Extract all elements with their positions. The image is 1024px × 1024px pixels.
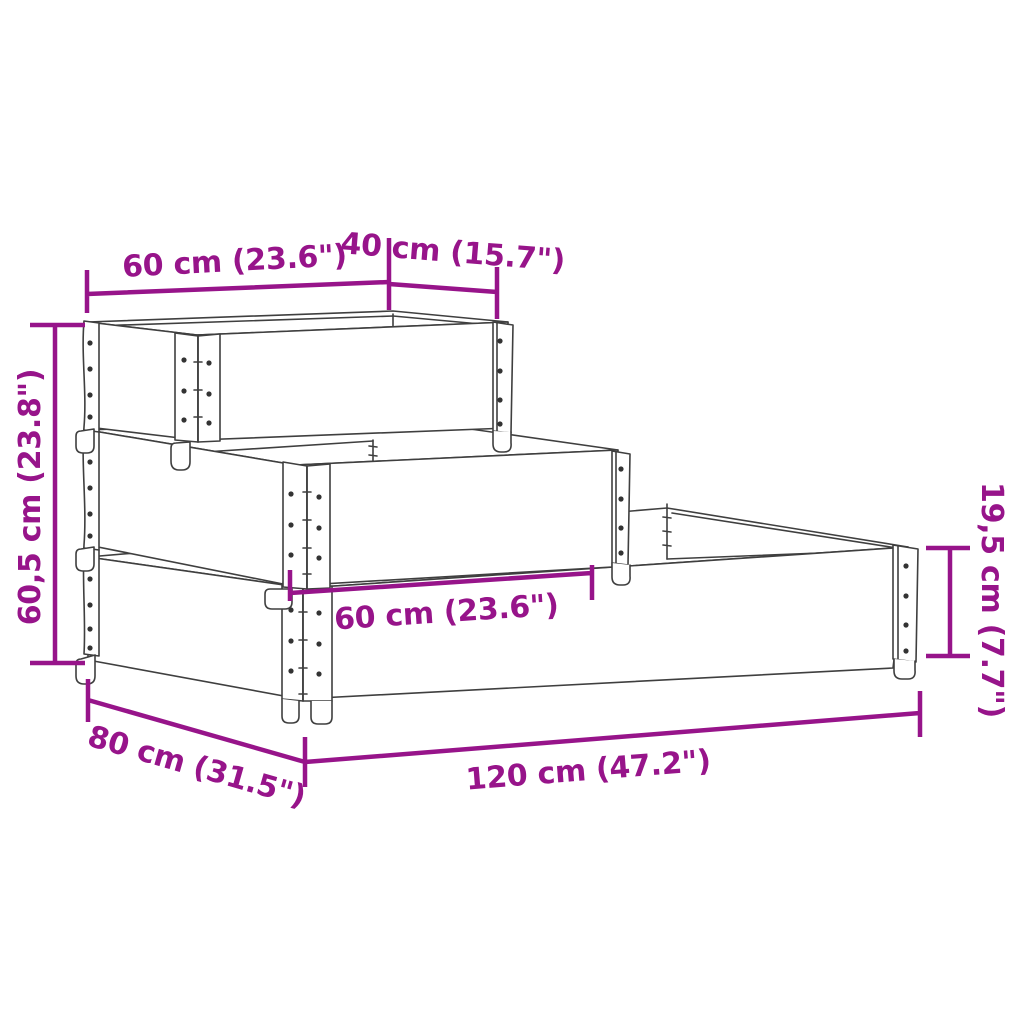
hinge-foot — [311, 701, 332, 724]
planter-drawing — [76, 311, 918, 724]
dim-line-tier-height — [926, 548, 970, 656]
hinge-foot — [76, 429, 94, 453]
dim-label-total-height: 60,5 cm (23.8") — [13, 369, 48, 626]
hinge-foot — [76, 655, 95, 684]
raised-bed-dimension-diagram: 60 cm (23.6") 40 cm (15.7") 60,5 cm (23.… — [0, 0, 1024, 1024]
dim-label-base-depth: 80 cm (31.5") — [84, 719, 310, 815]
dim-line-top-depth — [389, 267, 497, 319]
hinge-foot — [493, 431, 511, 452]
hinge-foot — [282, 699, 299, 723]
left-corner-hinges — [76, 321, 99, 684]
dim-label-base-width: 120 cm (47.2") — [465, 743, 712, 797]
dim-label-top-width: 60 cm (23.6") — [121, 238, 347, 285]
tier-top-front-right-wall — [197, 322, 508, 440]
tier-top-right-hinge — [493, 322, 513, 452]
dim-label-tier-height: 19,5 cm (7.7") — [974, 482, 1009, 718]
tier-middle-front-right-wall — [288, 450, 618, 586]
hinge-foot — [612, 563, 630, 585]
hinge-foot — [76, 547, 94, 571]
diagram-canvas: 60 cm (23.6") 40 cm (15.7") 60,5 cm (23.… — [0, 0, 1024, 1024]
hinge-foot — [171, 442, 190, 470]
hinge-foot — [894, 659, 915, 679]
dim-label-top-depth: 40 cm (15.7") — [339, 226, 566, 279]
